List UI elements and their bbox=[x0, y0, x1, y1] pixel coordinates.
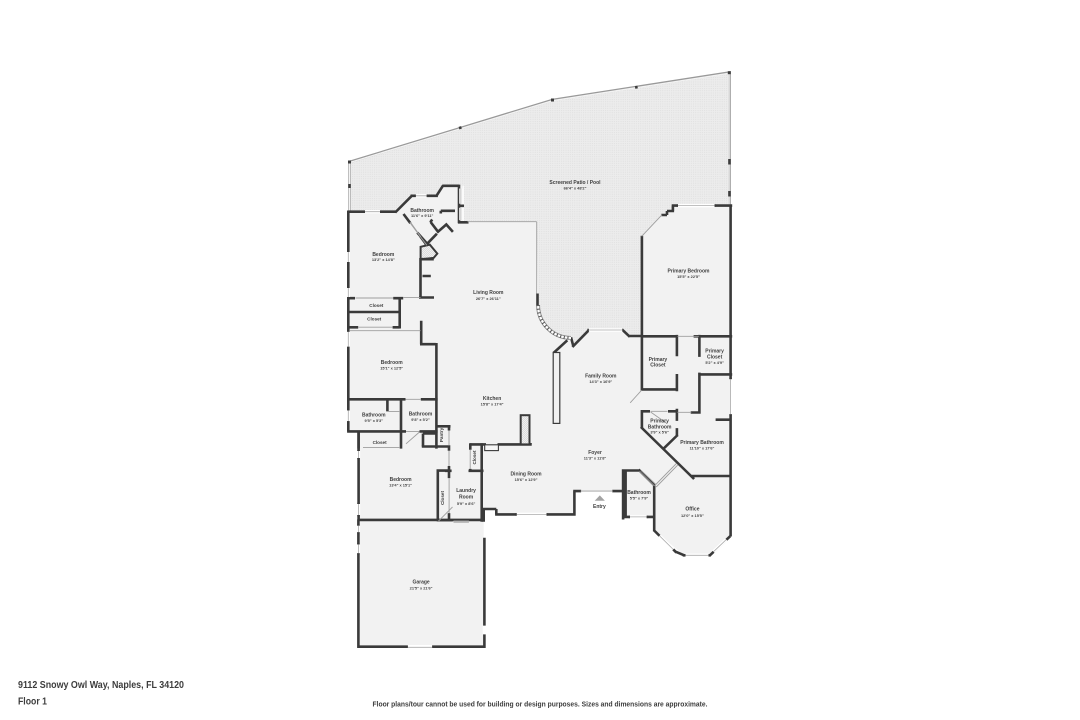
svg-text:11'10" x 17'6": 11'10" x 17'6" bbox=[690, 446, 715, 451]
svg-text:12'0" x 15'5": 12'0" x 15'5" bbox=[681, 513, 704, 518]
svg-text:Pantry: Pantry bbox=[439, 427, 444, 442]
svg-text:Closet: Closet bbox=[367, 317, 382, 322]
svg-text:15'1" x 12'5": 15'1" x 12'5" bbox=[380, 365, 403, 370]
svg-text:11'3" x 11'8": 11'3" x 11'8" bbox=[584, 456, 607, 461]
svg-text:5'9" x 8'6": 5'9" x 8'6" bbox=[457, 501, 476, 506]
svg-text:Entry: Entry bbox=[593, 504, 606, 510]
svg-text:15'6" x 12'9": 15'6" x 12'9" bbox=[515, 477, 538, 482]
svg-text:9'8" x 5'2": 9'8" x 5'2" bbox=[411, 417, 430, 422]
svg-text:Closet: Closet bbox=[373, 440, 388, 445]
svg-text:5'2" x 4'9": 5'2" x 4'9" bbox=[705, 360, 724, 365]
svg-text:9112 Snowy Owl Way, Naples, FL: 9112 Snowy Owl Way, Naples, FL 34120 bbox=[18, 679, 184, 691]
svg-text:21'5" x 21'6": 21'5" x 21'6" bbox=[410, 586, 433, 591]
svg-text:66'4" x 48'2": 66'4" x 48'2" bbox=[564, 185, 587, 190]
svg-text:Closet: Closet bbox=[472, 450, 477, 465]
svg-text:Closet: Closet bbox=[440, 491, 445, 506]
svg-text:Laundry: Laundry bbox=[456, 488, 476, 494]
svg-text:Closet: Closet bbox=[650, 363, 666, 369]
svg-text:Office: Office bbox=[685, 507, 699, 513]
svg-text:15'5" x 22'5": 15'5" x 22'5" bbox=[677, 274, 700, 279]
svg-text:15'8" x 17'4": 15'8" x 17'4" bbox=[481, 402, 504, 407]
svg-text:3'9" x 5'6": 3'9" x 5'6" bbox=[650, 430, 669, 435]
svg-text:Floor 1: Floor 1 bbox=[18, 695, 47, 707]
svg-text:Garage: Garage bbox=[412, 579, 429, 585]
svg-text:26'7" x 26'11": 26'7" x 26'11" bbox=[476, 296, 501, 301]
svg-text:11'6" x 9'11": 11'6" x 9'11" bbox=[411, 213, 434, 218]
svg-text:13'4" x 15'1": 13'4" x 15'1" bbox=[389, 482, 412, 487]
svg-text:Room: Room bbox=[459, 495, 474, 501]
svg-text:9'5" x 5'3": 9'5" x 5'3" bbox=[365, 418, 384, 423]
svg-text:13'2" x 14'8": 13'2" x 14'8" bbox=[372, 257, 395, 262]
svg-text:Closet: Closet bbox=[369, 303, 384, 308]
svg-text:Floor plans/tour cannot be use: Floor plans/tour cannot be used for buil… bbox=[373, 699, 708, 708]
svg-text:5'5" x 7'9": 5'5" x 7'9" bbox=[630, 495, 649, 500]
svg-text:14'3" x 16'9": 14'3" x 16'9" bbox=[589, 379, 612, 384]
